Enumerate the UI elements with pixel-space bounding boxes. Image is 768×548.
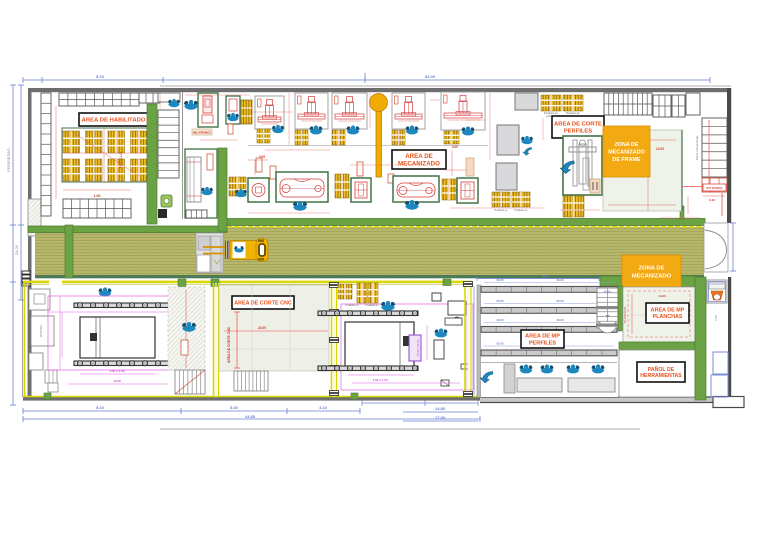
svg-text:84.00: 84.00 — [425, 74, 436, 79]
svg-text:4.50 x 1.50: 4.50 x 1.50 — [109, 369, 124, 373]
svg-text:24.00: 24.00 — [258, 326, 266, 330]
svg-text:5.40: 5.40 — [230, 405, 239, 410]
svg-text:12.00: 12.00 — [113, 379, 121, 383]
svg-text:AREA DE MP: AREA DE MP — [525, 334, 560, 340]
svg-text:MECANIZADO: MECANIZADO — [608, 149, 645, 155]
svg-text:3.00: 3.00 — [259, 155, 265, 159]
svg-text:24.00: 24.00 — [14, 244, 19, 255]
svg-text:30.00: 30.00 — [557, 278, 564, 282]
svg-text:4.10: 4.10 — [319, 405, 328, 410]
svg-text:Producto en: Producto en — [346, 304, 360, 307]
svg-text:30.00: 30.00 — [557, 299, 564, 303]
svg-text:Producto en: Producto en — [366, 304, 380, 307]
svg-text:MAT MADERA: MAT MADERA — [706, 187, 722, 190]
svg-text:PAÑOL DE: PAÑOL DE — [648, 366, 675, 373]
svg-text:MECANIZADO: MECANIZADO — [398, 160, 440, 167]
svg-text:OFICINA: OFICINA — [39, 325, 43, 337]
svg-text:AREA DE HABILITADO: AREA DE HABILITADO — [82, 118, 146, 124]
svg-text:17.80: 17.80 — [435, 415, 446, 420]
svg-text:18.90: 18.90 — [541, 274, 549, 278]
svg-text:Producto en: Producto en — [515, 209, 529, 212]
svg-text:30.00: 30.00 — [497, 299, 504, 303]
svg-text:14.80: 14.80 — [435, 406, 446, 411]
svg-text:ZONA DE: ZONA DE — [614, 142, 638, 148]
svg-text:AREA DE MP: AREA DE MP — [651, 308, 685, 314]
svg-text:HERRAMIENTAS: HERRAMIENTAS — [640, 373, 682, 379]
svg-text:30.00: 30.00 — [557, 318, 564, 322]
svg-text:45.50 / 25.60: 45.50 / 25.60 — [416, 339, 420, 357]
svg-text:Stock mecanizado: Stock mecanizado — [695, 135, 699, 160]
svg-text:30.00: 30.00 — [497, 342, 504, 346]
svg-text:8.10: 8.10 — [96, 74, 105, 79]
svg-text:44.85: 44.85 — [245, 414, 256, 419]
svg-text:Producto en: Producto en — [495, 209, 509, 212]
svg-text:8.10: 8.10 — [96, 405, 105, 410]
svg-text:MECANIZADO: MECANIZADO — [632, 274, 672, 280]
svg-text:30.00: 30.00 — [497, 318, 504, 322]
svg-text:PROPIEDAD: PROPIEDAD — [6, 148, 11, 172]
svg-text:AREA DE CORTE CNC: AREA DE CORTE CNC — [227, 326, 231, 363]
svg-text:ZONA DE: ZONA DE — [639, 266, 665, 272]
svg-text:4.00: 4.00 — [452, 145, 458, 149]
svg-text:PLANCHAS: PLANCHAS — [653, 314, 683, 320]
svg-text:PASILLO: PASILLO — [118, 152, 123, 168]
svg-text:14.00: 14.00 — [604, 290, 611, 294]
svg-text:AREA DE CORTE CNC: AREA DE CORTE CNC — [234, 300, 292, 306]
svg-text:PERFILES: PERFILES — [529, 340, 557, 346]
svg-text:4.50 x 1.50: 4.50 x 1.50 — [372, 378, 387, 382]
svg-text:3.10: 3.10 — [709, 198, 715, 202]
svg-text:1.00: 1.00 — [94, 194, 101, 198]
svg-text:MILLTRONICS: MILLTRONICS — [193, 131, 211, 135]
svg-text:AREA DE CORTE: AREA DE CORTE — [554, 122, 602, 128]
svg-text:PERFILES: PERFILES — [564, 128, 592, 134]
svg-text:DE FRAME: DE FRAME — [612, 157, 641, 163]
svg-text:12.00: 12.00 — [656, 147, 664, 151]
svg-text:AREA DE: AREA DE — [405, 153, 433, 160]
svg-text:30.00: 30.00 — [497, 278, 504, 282]
svg-text:14.00: 14.00 — [658, 294, 666, 298]
svg-text:PLANCHAS: PLANCHAS — [623, 307, 627, 323]
svg-text:2.00: 2.00 — [714, 315, 718, 321]
